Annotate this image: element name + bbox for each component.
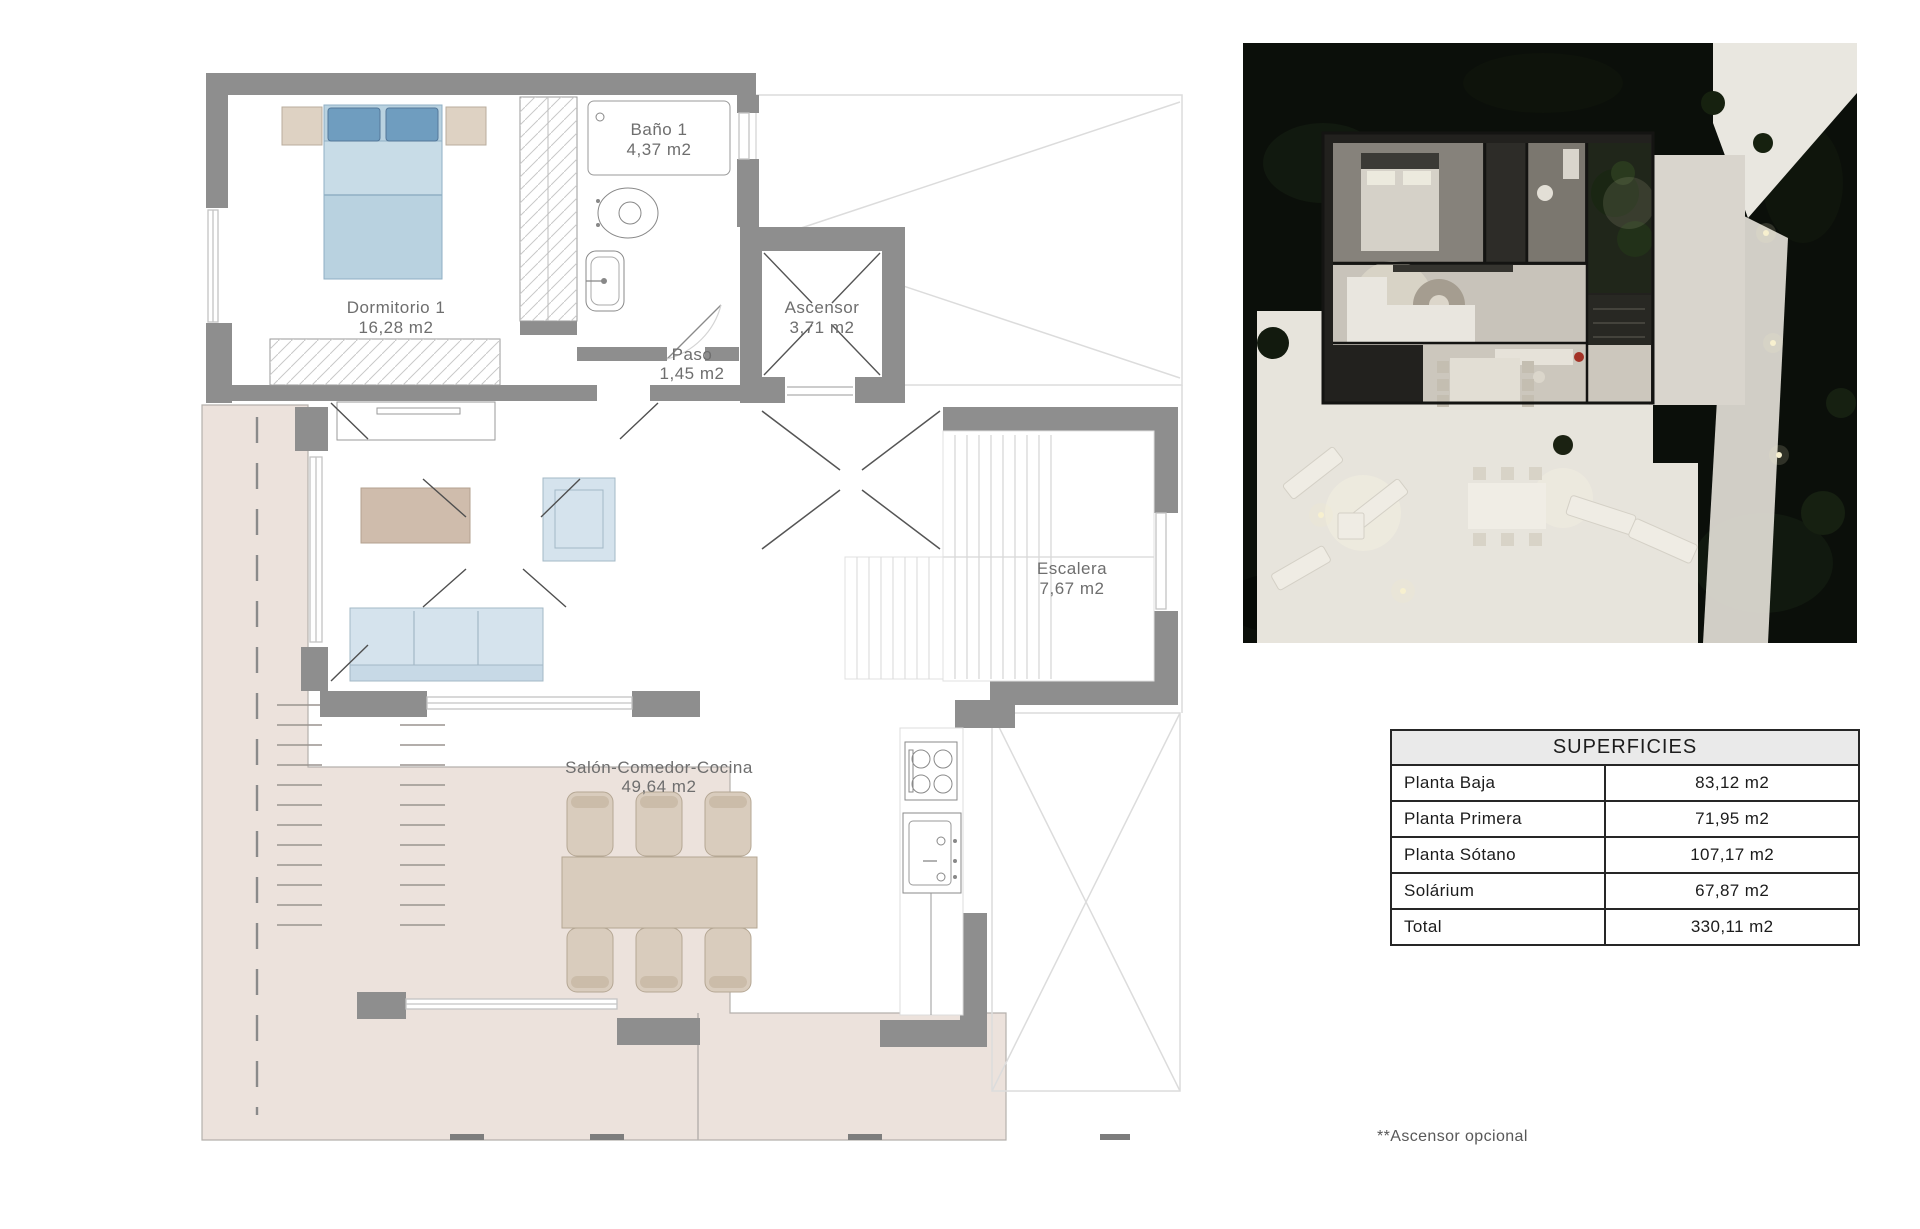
row-value: 67,87 m2: [1606, 874, 1858, 908]
bathroom-sink: [586, 251, 624, 311]
row-value: 83,12 m2: [1606, 766, 1858, 800]
superficies-title: SUPERFICIES: [1392, 731, 1858, 766]
render-3d-view: [1243, 43, 1857, 643]
row-value: 107,17 m2: [1606, 838, 1858, 872]
row-label: Planta Sótano: [1392, 838, 1606, 872]
armchair: [543, 478, 615, 561]
render-house: [1323, 133, 1655, 407]
row-value: 330,11 m2: [1606, 910, 1858, 944]
bed: [324, 105, 442, 279]
row-value: 71,95 m2: [1606, 802, 1858, 836]
table-row: Planta Baja 83,12 m2: [1392, 766, 1858, 802]
row-label: Total: [1392, 910, 1606, 944]
room-label-ascensor: Ascensor: [785, 298, 860, 317]
sofa: [350, 608, 543, 681]
cooktop: [905, 742, 957, 800]
row-label: Planta Primera: [1392, 802, 1606, 836]
room-label-escalera: Escalera: [1037, 559, 1107, 578]
room-area-bano: 4,37 m2: [627, 140, 692, 159]
row-label: Planta Baja: [1392, 766, 1606, 800]
superficies-table: SUPERFICIES Planta Baja 83,12 m2 Planta …: [1390, 729, 1860, 946]
room-label-bano: Baño 1: [631, 120, 688, 139]
coffee-table: [361, 488, 470, 543]
chair-headrests-top: [571, 796, 747, 808]
table-row: Planta Primera 71,95 m2: [1392, 802, 1858, 838]
tv-cabinet: [337, 402, 495, 440]
room-area-escalera: 7,67 m2: [1040, 579, 1105, 598]
room-area-ascensor: 3,71 m2: [790, 318, 855, 337]
stairs: [845, 431, 1154, 681]
room-area-paso: 1,45 m2: [660, 364, 725, 383]
floor-plan: Dormitorio 1 16,28 m2 Baño 1 4,37 m2 Pas…: [200, 55, 1190, 1145]
room-label-dormitorio: Dormitorio 1: [347, 298, 446, 317]
table-row: Planta Sótano 107,17 m2: [1392, 838, 1858, 874]
table-row: Total 330,11 m2: [1392, 910, 1858, 944]
table-row: Solárium 67,87 m2: [1392, 874, 1858, 910]
dining-set: [562, 792, 757, 992]
row-label: Solárium: [1392, 874, 1606, 908]
page: Dormitorio 1 16,28 m2 Baño 1 4,37 m2 Pas…: [0, 0, 1920, 1229]
room-area-salon: 49,64 m2: [622, 777, 697, 796]
dresser: [270, 339, 500, 385]
chair-headrests-bottom: [571, 976, 747, 988]
footnote: **Ascensor opcional: [1377, 1128, 1528, 1146]
room-label-salon: Salón-Comedor-Cocina: [565, 758, 753, 777]
room-label-paso: Paso: [672, 345, 713, 364]
void-cross-marks: [762, 411, 940, 549]
dining-table: [562, 857, 757, 928]
toilet: [596, 188, 658, 238]
room-area-dormitorio: 16,28 m2: [359, 318, 434, 337]
wardrobe: [520, 97, 577, 321]
render-right-walk: [1649, 155, 1745, 405]
